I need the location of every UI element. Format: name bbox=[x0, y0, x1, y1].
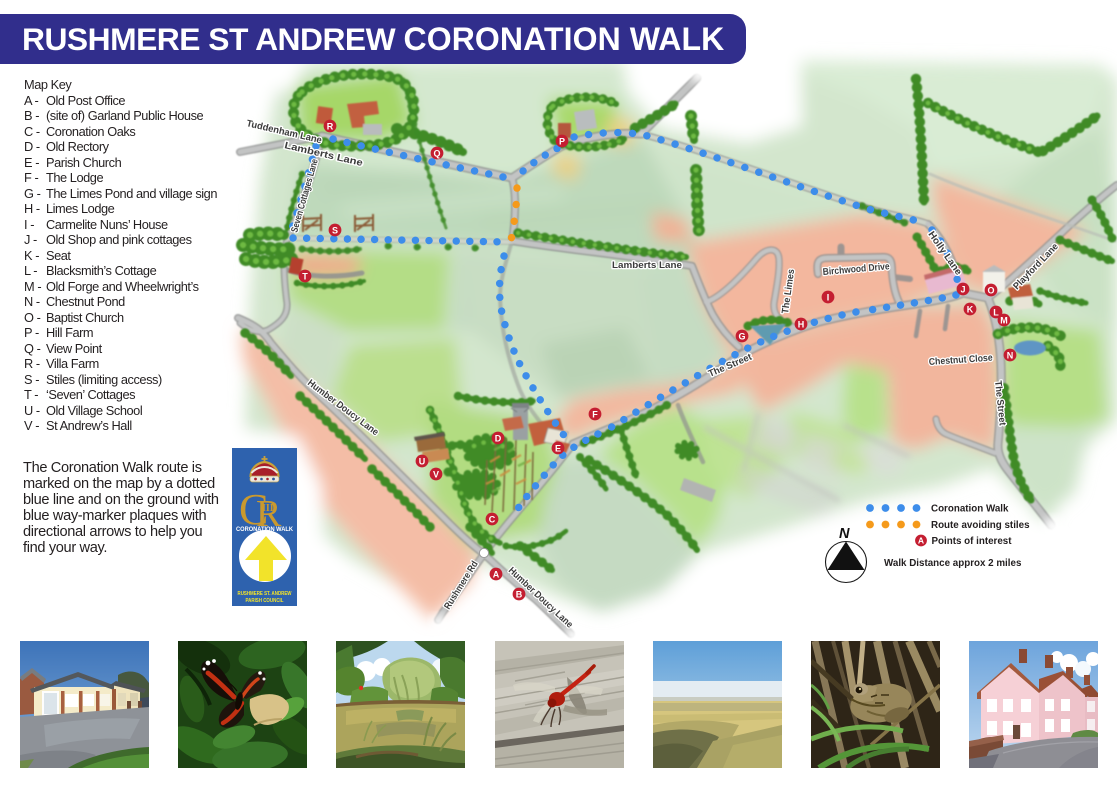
svg-text:H: H bbox=[798, 319, 805, 329]
svg-text:Points of interest: Points of interest bbox=[932, 536, 1013, 547]
svg-text:E: E bbox=[555, 443, 561, 453]
svg-text:C: C bbox=[489, 514, 496, 524]
svg-text:K: K bbox=[967, 304, 974, 314]
svg-text:N: N bbox=[1007, 350, 1014, 360]
svg-text:R: R bbox=[327, 121, 334, 131]
svg-text:M: M bbox=[1000, 315, 1008, 325]
svg-text:G: G bbox=[738, 331, 745, 341]
svg-text:J: J bbox=[960, 284, 965, 294]
svg-text:T: T bbox=[302, 271, 308, 281]
svg-text:V: V bbox=[433, 469, 439, 479]
svg-text:Coronation Walk: Coronation Walk bbox=[931, 503, 1009, 514]
svg-text:S: S bbox=[332, 225, 338, 235]
svg-text:Q: Q bbox=[433, 148, 440, 158]
svg-text:I: I bbox=[827, 292, 830, 302]
svg-text:Route avoiding stiles: Route avoiding stiles bbox=[931, 520, 1030, 531]
svg-text:Walk Distance approx 2 miles: Walk Distance approx 2 miles bbox=[884, 558, 1022, 569]
svg-text:D: D bbox=[495, 433, 502, 443]
svg-text:L: L bbox=[993, 307, 999, 317]
svg-text:N: N bbox=[839, 526, 850, 542]
svg-text:U: U bbox=[419, 456, 426, 466]
svg-text:A: A bbox=[918, 536, 924, 546]
svg-text:PARISH COUNCIL: PARISH COUNCIL bbox=[246, 598, 285, 604]
svg-text:F: F bbox=[592, 409, 598, 419]
svg-text:Lamberts Lane: Lamberts Lane bbox=[612, 260, 682, 271]
svg-text:P: P bbox=[559, 136, 565, 146]
svg-text:A: A bbox=[493, 569, 500, 579]
svg-text:RUSHMERE ST. ANDREW: RUSHMERE ST. ANDREW bbox=[238, 591, 292, 597]
svg-text:O: O bbox=[987, 285, 994, 295]
svg-text:B: B bbox=[516, 589, 523, 599]
svg-text:III: III bbox=[262, 503, 274, 514]
